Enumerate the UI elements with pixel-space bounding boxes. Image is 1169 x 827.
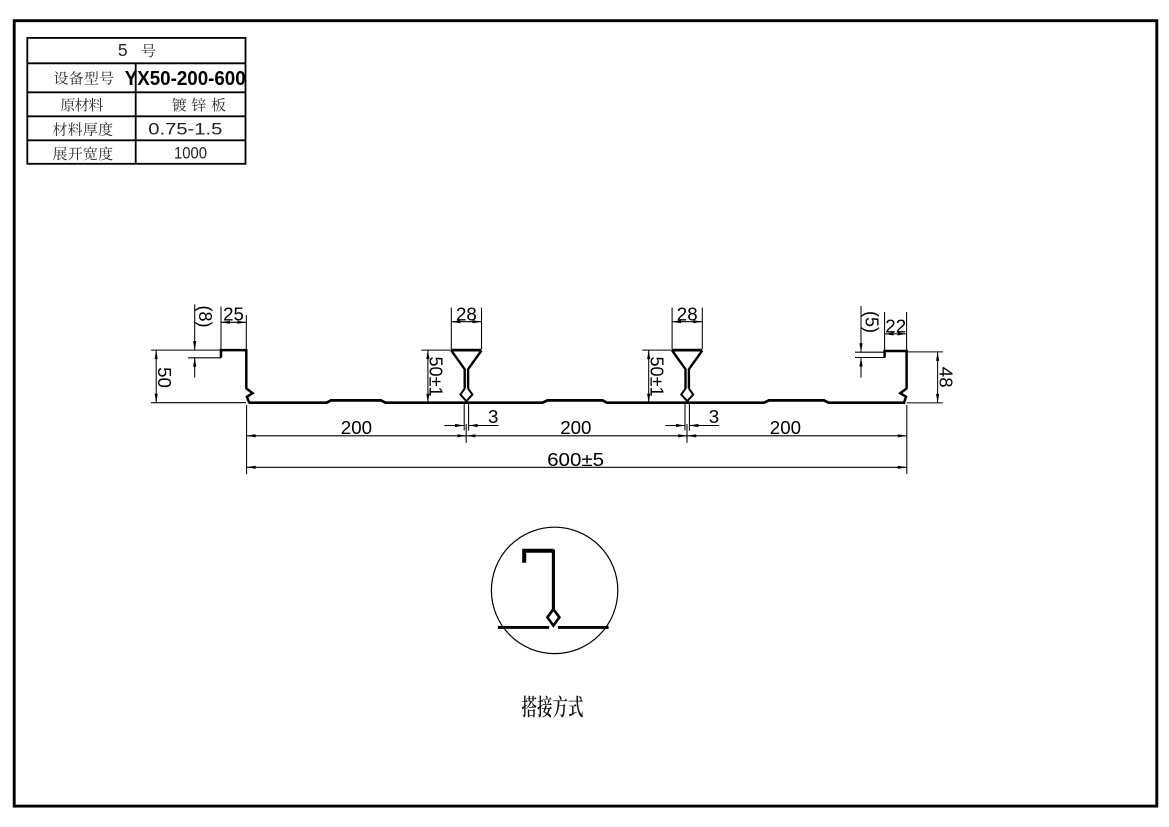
- svg-text:25: 25: [223, 304, 244, 325]
- svg-text:1000: 1000: [174, 144, 207, 163]
- svg-text:200: 200: [560, 417, 591, 438]
- svg-text:50: 50: [154, 367, 175, 388]
- svg-text:5: 5: [118, 40, 128, 60]
- svg-text:3: 3: [709, 406, 719, 427]
- svg-text:200: 200: [770, 417, 801, 438]
- svg-text:0.75-1.5: 0.75-1.5: [148, 119, 222, 138]
- svg-text:48: 48: [936, 367, 957, 388]
- svg-text:50±1: 50±1: [647, 357, 667, 397]
- svg-text:(8): (8): [195, 306, 215, 328]
- svg-text:22: 22: [885, 315, 906, 336]
- svg-text:50±1: 50±1: [426, 357, 446, 397]
- svg-text:(5): (5): [862, 311, 882, 333]
- svg-text:200: 200: [341, 417, 372, 438]
- svg-text:3: 3: [488, 406, 498, 427]
- svg-text:600±5: 600±5: [547, 449, 604, 470]
- svg-text:28: 28: [456, 303, 477, 324]
- svg-text:28: 28: [677, 303, 698, 324]
- svg-text:YX50-200-600: YX50-200-600: [125, 67, 246, 90]
